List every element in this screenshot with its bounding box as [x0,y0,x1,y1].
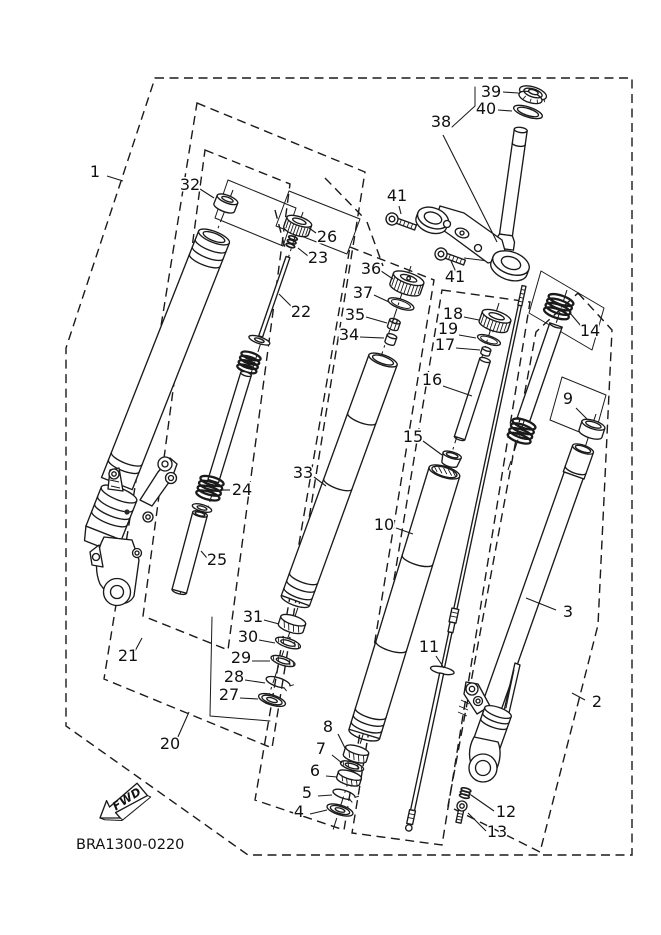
part-label-35: 35 [345,305,365,324]
leader-line-5 [318,795,332,796]
part-label-33: 33 [293,463,313,482]
part-13-bolt [454,800,468,824]
leader-line-18 [464,317,479,320]
part-41-bolt-lower [433,246,466,268]
part-34-bush [384,333,397,347]
part-label-31: 31 [243,607,263,626]
part-label-41: 41 [387,186,407,205]
leader-line-12 [471,795,494,811]
part-label-11: 11 [419,637,439,656]
leader-line-17 [456,348,480,350]
part-label-37: 37 [353,283,373,302]
part-35-nut [387,317,401,331]
part-label-24: 24 [232,480,252,499]
part-label-30: 30 [238,627,258,646]
leader-line-4 [310,810,327,814]
part-label-36: 36 [361,259,381,278]
part-21-outer-tube [102,226,232,490]
leader-line-1 [107,176,123,181]
part-label-22: 22 [291,302,311,321]
part-label-32: 32 [180,175,200,194]
part-18-cap [477,307,512,337]
part-label-27: 27 [219,685,239,704]
part-label-41: 41 [445,267,465,286]
part-label-1: 1 [90,162,100,181]
part-27-seal [257,691,287,709]
leader-line-16 [443,386,472,396]
part-label-6: 6 [310,761,320,780]
part-label-4: 4 [294,802,304,821]
part-label-8: 8 [323,717,333,736]
part-28-clip [264,674,294,692]
part-label-23: 23 [308,248,328,267]
part-spring-small [236,350,261,375]
part-label-38: 38 [431,112,451,131]
part-17-nut [480,346,491,357]
part-36-cap [388,268,426,300]
part-label-21: 21 [118,646,138,665]
part-10-tube [347,462,461,744]
part-12-clip [459,787,471,799]
leader-line-30 [259,640,275,643]
leader-line-13 [468,813,486,831]
leader-line-32 [200,189,214,198]
part-label-25: 25 [207,550,227,569]
part-3-outer-tube [480,442,595,715]
part-label-26: 26 [317,227,337,246]
leader-line-41 [399,206,401,214]
part-2-axle-bracket [458,663,520,782]
part-39-bearing [517,83,549,107]
part-damper-tube [208,370,252,482]
part-label-3: 3 [563,602,573,621]
part-label-40: 40 [476,99,496,118]
part-41-bolt-upper [384,211,417,233]
leader-line-37 [374,295,389,302]
part-32-cap [213,192,240,216]
leader-line-27 [240,698,258,699]
part-22-damper-rod [248,253,299,347]
part-label-5: 5 [302,783,312,802]
leader-line-28 [245,680,265,683]
part-4-seal [326,801,355,818]
label-bracket-39-40 [452,87,475,127]
leader-line-19 [459,335,476,338]
part-label-14: 14 [580,321,600,340]
part-label-12: 12 [496,802,516,821]
fwd-arrow: FWD [94,779,153,829]
leader-line-9 [576,408,587,419]
leader-line-15 [423,441,442,455]
part-label-20: 20 [160,734,180,753]
leader-line-34 [360,337,384,338]
part-label-2: 2 [592,692,602,711]
part-31-bush [277,612,307,636]
part-label-29: 29 [231,648,251,667]
leader-line-40 [498,110,512,111]
diagram-code: BRA1300-0220 [76,837,184,853]
part-label-9: 9 [563,389,573,408]
leader-line-35 [366,317,387,323]
part-29-washer [270,653,296,669]
part-38-steering-stem [495,126,531,250]
leader-line-7 [332,755,342,763]
fwd-arrow-label: FWD [110,784,144,813]
part-label-15: 15 [403,427,423,446]
leader-line-23 [298,248,308,256]
part-label-10: 10 [374,515,394,534]
leader-line-31 [264,620,279,624]
part-label-16: 16 [422,370,442,389]
leader-line-6 [326,776,337,777]
leader-line-39 [503,92,518,93]
part-37-oring [387,295,416,312]
part-label-34: 34 [339,325,359,344]
part-23-spring [286,235,298,249]
part-16-tube [454,356,491,441]
part-9-bush [578,417,606,441]
part-40-washer [512,103,544,122]
parts-diagram-page: FWD BRA1300-0220 13226232224252120333130… [0,0,661,935]
part-label-13: 13 [487,822,507,841]
part-label-17: 17 [435,335,455,354]
leader-line-8 [338,734,345,748]
part-label-7: 7 [316,739,326,758]
assoc-line-26 [325,178,363,217]
leader-line-36 [381,271,393,279]
part-5-clip [332,787,359,803]
part-label-28: 28 [224,667,244,686]
fork-parts-diagram: FWD BRA1300-0220 13226232224252120333130… [0,0,661,935]
